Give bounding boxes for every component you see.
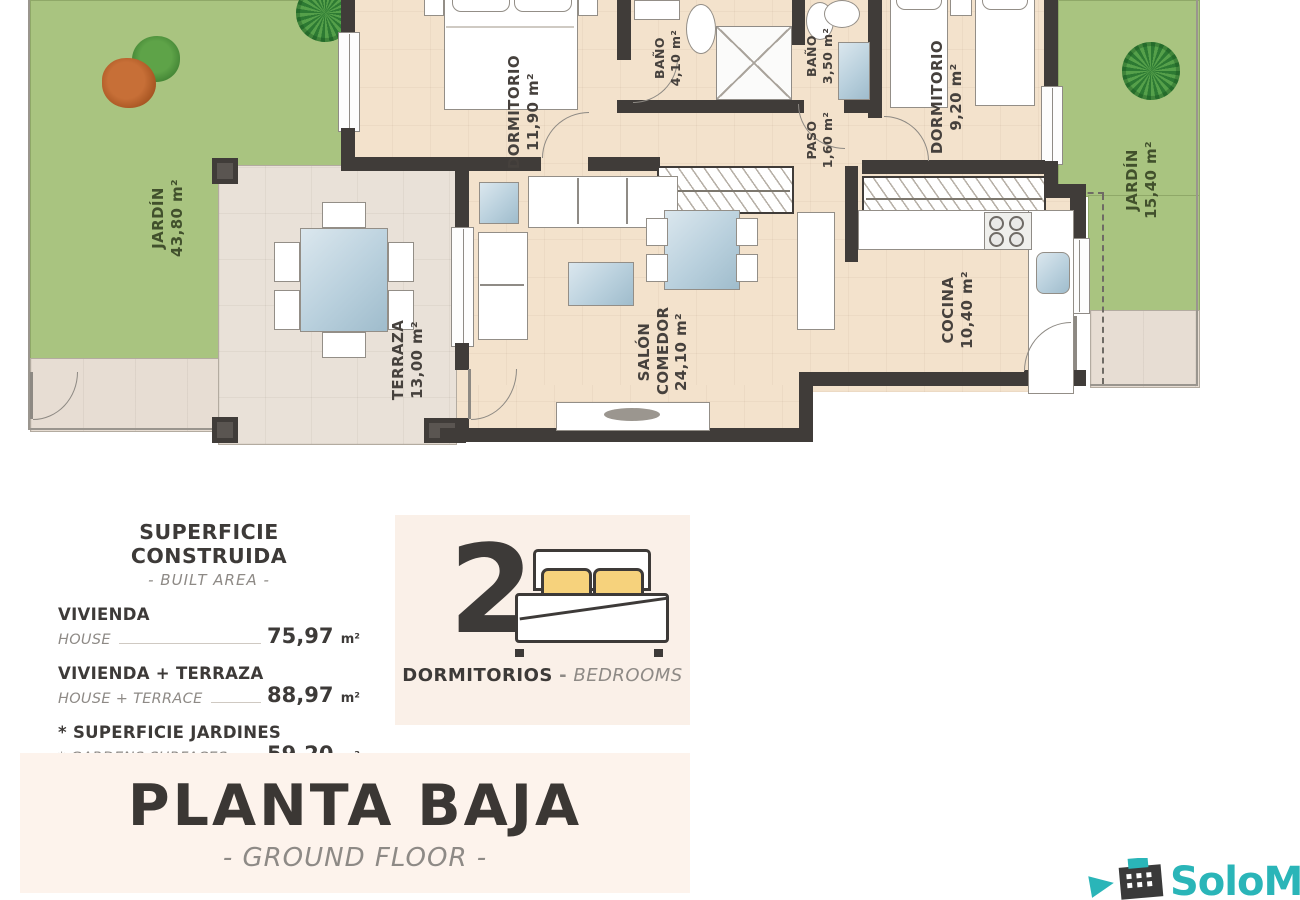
floor-plan-page: JARDÍN 43,80 m² TERRAZA 13,00 m² DORMITO… (0, 0, 1300, 900)
wall (1044, 161, 1058, 198)
room-label-bath-2: BAÑO 3,50 m² (800, 8, 840, 104)
chair (736, 254, 758, 282)
room-area: 10,40 m² (958, 271, 977, 349)
sofa-small (478, 232, 528, 340)
room-area: 43,80 m² (168, 179, 187, 257)
room-name: TERRAZA (389, 320, 408, 400)
bed-leg (654, 649, 663, 657)
sofa-cushion-line (577, 178, 579, 224)
stove-burner (989, 232, 1004, 247)
chair (388, 242, 414, 282)
bed-icon (503, 549, 675, 651)
built-area-legend: SUPERFICIE CONSTRUIDA - BUILT AREA - VIV… (58, 520, 360, 766)
legend-label-es: VIVIENDA + TERRAZA (58, 664, 360, 683)
sofa-cushion-line (480, 284, 524, 286)
door-leaf (468, 369, 471, 419)
sliding-door (451, 227, 474, 347)
legend-value: 75,97 m² (267, 624, 360, 648)
wall (588, 157, 660, 171)
agency-logo: SoloMar (1088, 858, 1300, 900)
nightstand (578, 0, 598, 16)
fence-bottom-right (1090, 384, 1198, 386)
floor-plan: JARDÍN 43,80 m² TERRAZA 13,00 m² DORMITO… (0, 0, 1300, 465)
wall (844, 100, 868, 113)
wall (1044, 0, 1058, 88)
fence-bottom-left (28, 428, 220, 430)
chair (274, 290, 300, 330)
room-area: 4,10 m² (668, 30, 684, 87)
plot-dashed-line-side (1102, 194, 1104, 384)
room-area: 15,40 m² (1142, 141, 1161, 219)
wall (617, 0, 631, 60)
room-name: JARDÍN (1123, 149, 1142, 211)
pavement-right (1090, 310, 1200, 388)
wall (868, 0, 882, 118)
chair (322, 332, 366, 358)
room-name: COCINA (939, 277, 958, 344)
legend-label-en: HOUSE + TERRACE (58, 691, 203, 707)
chair (646, 218, 668, 246)
pillow (896, 0, 942, 10)
room-name: JARDÍN (149, 187, 168, 249)
room-label-garden-left: JARDÍN 43,80 m² (146, 133, 190, 303)
room-label-kitchen: COCINA 10,40 m² (937, 230, 979, 390)
bedrooms-caption: DORMITORIOS - BEDROOMS (395, 665, 690, 686)
coffee-table (568, 262, 634, 306)
window (1041, 86, 1063, 165)
wall (341, 0, 355, 34)
legend-value: 88,97 m² (267, 683, 360, 707)
room-area: 1,60 m² (820, 112, 836, 169)
floor-title-panel: PLANTA BAJA - GROUND FLOOR - (20, 753, 690, 893)
sofa-cushion-line (626, 178, 628, 224)
legend-label-en: HOUSE (58, 632, 111, 648)
room-name: BAÑO (652, 37, 668, 79)
legend-label-es: * SUPERFICIE JARDINES (58, 723, 360, 742)
room-name: PASO (804, 121, 820, 160)
room-label-hall: PASO 1,60 m² (802, 95, 838, 185)
bed-leg (515, 649, 524, 657)
room-label-bedroom-2: DORMITORIO 9,20 m² (927, 17, 967, 177)
pillow (514, 0, 572, 12)
shower (716, 26, 792, 100)
legend-subtitle: - BUILT AREA - (58, 571, 360, 589)
room-area: 9,20 m² (947, 63, 966, 130)
chair (646, 254, 668, 282)
room-area: 3,50 m² (820, 28, 836, 85)
terrace-table (300, 228, 388, 332)
logo-building-icon (1119, 864, 1164, 900)
tv (604, 408, 660, 421)
logo-roof-icon (1128, 858, 1149, 869)
room-area: 24,10 m² (672, 313, 691, 391)
logo-wordmark: SoloMar (1170, 862, 1300, 900)
logo-building-windows (1126, 874, 1131, 879)
room-name: SALÓN COMEDOR (635, 309, 673, 395)
legend-row-house: VIVIENDA HOUSE 75,97 m² (58, 605, 360, 648)
wall (455, 343, 469, 370)
stove-burner (1009, 216, 1024, 231)
kitchen-counter (797, 212, 835, 330)
stove-burner (989, 216, 1004, 231)
legend-title: SUPERFICIE CONSTRUIDA (58, 520, 360, 568)
nightstand (424, 0, 444, 16)
pillow (452, 0, 510, 12)
orange-bush-icon (102, 58, 156, 108)
dining-table (664, 210, 740, 290)
room-area: 13,00 m² (408, 321, 427, 399)
bedrooms-badge: 2 DORMITORIOS - BEDROOMS (395, 515, 690, 725)
room-label-living: SALÓN COMEDOR 24,10 m² (631, 297, 695, 407)
kitchen-sink (1036, 252, 1070, 294)
room-name: DORMITORIO (928, 40, 947, 154)
leader-line (211, 702, 261, 703)
legend-row-house-terrace: VIVIENDA + TERRAZA HOUSE + TERRACE 88,97… (58, 664, 360, 707)
room-name: DORMITORIO (505, 55, 524, 169)
wall (455, 157, 469, 229)
pillow (982, 0, 1028, 10)
leader-line (119, 643, 261, 644)
fence-left (28, 0, 30, 430)
chair (322, 202, 366, 228)
chair (736, 218, 758, 246)
room-label-bedroom-main: DORMITORIO 11,90 m² (503, 27, 545, 197)
wall (617, 100, 792, 113)
floor-subtitle: - GROUND FLOOR - (223, 843, 487, 873)
nightstand (950, 0, 972, 16)
terrace-post (212, 158, 238, 184)
toilet (686, 4, 716, 54)
gate-leaf (30, 372, 33, 419)
room-label-terrace: TERRAZA 13,00 m² (387, 285, 429, 435)
legend-label-es: VIVIENDA (58, 605, 360, 624)
chair (274, 242, 300, 282)
terrace-post (212, 417, 238, 443)
single-bed (975, 0, 1035, 106)
window (338, 32, 360, 132)
wall (845, 166, 858, 262)
room-label-garden-right: JARDÍN 15,40 m² (1120, 105, 1164, 255)
room-label-bath-1: BAÑO 4,10 m² (648, 3, 688, 113)
logo-triangle-icon (1088, 872, 1115, 898)
room-area: 11,90 m² (524, 73, 543, 151)
fence-right (1196, 0, 1198, 386)
wall (799, 372, 1044, 386)
bathtub (838, 42, 870, 100)
room-name: BAÑO (804, 35, 820, 77)
stove-burner (1009, 232, 1024, 247)
palm-tree-right-icon (1122, 42, 1180, 100)
floor-title: PLANTA BAJA (128, 773, 582, 839)
